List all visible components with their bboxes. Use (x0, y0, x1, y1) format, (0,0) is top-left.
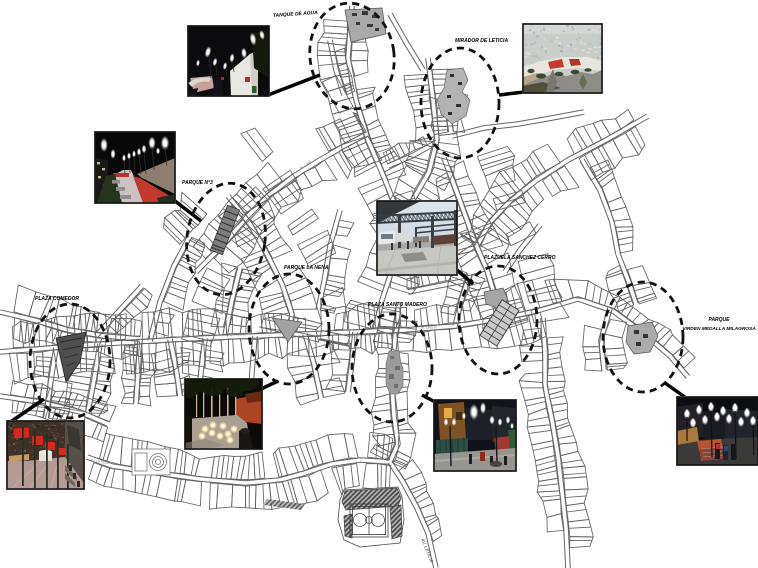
svg-text:JR. UNION: JR. UNION (419, 325, 438, 330)
svg-text:PARQUE N°3: PARQUE N°3 (182, 180, 213, 186)
svg-text:PLAZA SANTO MADERO: PLAZA SANTO MADERO (368, 302, 427, 308)
svg-text:VIRDEN MEDALLA MILAGROSA: VIRDEN MEDALLA MILAGROSA (682, 326, 756, 332)
svg-text:PARQUE: PARQUE (708, 317, 730, 323)
svg-text:PLAZUELA SANCHEZ CERRO: PLAZUELA SANCHEZ CERRO (484, 255, 556, 261)
svg-text:PARQUE LA NENA: PARQUE LA NENA (284, 265, 329, 271)
svg-text:MIRADOR DE LETICIA: MIRADOR DE LETICIA (455, 38, 508, 44)
svg-text:PLAZA COMEDOR: PLAZA COMEDOR (35, 296, 79, 302)
svg-text:JR. GRAU: JR. GRAU (229, 333, 246, 337)
